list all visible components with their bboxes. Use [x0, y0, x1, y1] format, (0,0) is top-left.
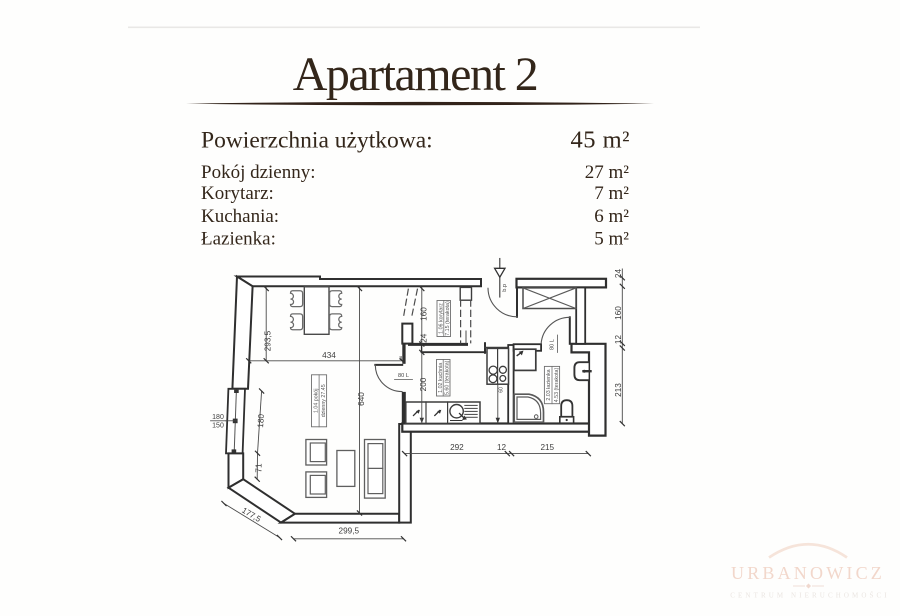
svg-text:12: 12 [497, 443, 507, 452]
svg-text:27 m²: 27 m² [585, 162, 630, 183]
svg-text:6 m²: 6 m² [594, 206, 629, 227]
svg-text:b.p: b.p [502, 284, 508, 292]
svg-text:4.53 (terakota): 4.53 (terakota) [554, 368, 560, 403]
svg-text:45 m²: 45 m² [570, 127, 630, 154]
svg-text:1.02 kuchnia: 1.02 kuchnia [438, 363, 444, 393]
svg-text:80 L: 80 L [550, 339, 556, 350]
svg-text:213: 213 [614, 383, 623, 397]
svg-text:Pokój dzienny:: Pokój dzienny: [201, 162, 316, 183]
svg-text:24: 24 [419, 333, 428, 343]
svg-text:60: 60 [499, 387, 505, 393]
svg-text:Kuchania:: Kuchania: [201, 206, 279, 227]
svg-text:URBANOWICZ: URBANOWICZ [731, 563, 885, 583]
svg-text:5.60 (terakota): 5.60 (terakota) [445, 360, 451, 395]
svg-text:Powierzchnia użytkowa:: Powierzchnia użytkowa: [201, 128, 433, 154]
svg-text:215: 215 [540, 443, 554, 452]
svg-text:Łazienka:: Łazienka: [201, 228, 276, 249]
svg-text:71: 71 [255, 463, 264, 473]
svg-text:150: 150 [212, 423, 224, 430]
svg-text:180: 180 [256, 413, 266, 428]
svg-text:293,5: 293,5 [264, 330, 273, 351]
svg-text:299,5: 299,5 [339, 527, 360, 536]
svg-text:160: 160 [419, 307, 428, 321]
svg-text:2.03 łazienka: 2.03 łazienka [546, 369, 552, 400]
svg-text:292: 292 [450, 443, 464, 452]
svg-text:7 m²: 7 m² [594, 183, 629, 204]
svg-text:1.06 korytarz: 1.06 korytarz [438, 303, 444, 334]
svg-text:640: 640 [357, 392, 366, 406]
svg-text:200: 200 [419, 377, 428, 391]
svg-text:dzienny 27.45: dzienny 27.45 [321, 384, 327, 417]
svg-text:180: 180 [212, 414, 224, 421]
svg-text:80 L: 80 L [398, 373, 409, 379]
svg-text:5 m²: 5 m² [594, 228, 629, 249]
svg-text:434: 434 [322, 351, 336, 360]
svg-text:12: 12 [614, 335, 623, 345]
svg-text:Apartament 2: Apartament 2 [293, 48, 538, 101]
svg-text:Korytarz:: Korytarz: [201, 183, 274, 204]
svg-text:1.04 pokój: 1.04 pokój [313, 389, 319, 413]
svg-text:CENTRUM NIERUCHOMOŚCI: CENTRUM NIERUCHOMOŚCI [730, 592, 889, 600]
svg-text:160: 160 [614, 306, 623, 320]
svg-text:24: 24 [614, 269, 623, 279]
svg-text:7.15 (terakota): 7.15 (terakota) [445, 301, 451, 336]
